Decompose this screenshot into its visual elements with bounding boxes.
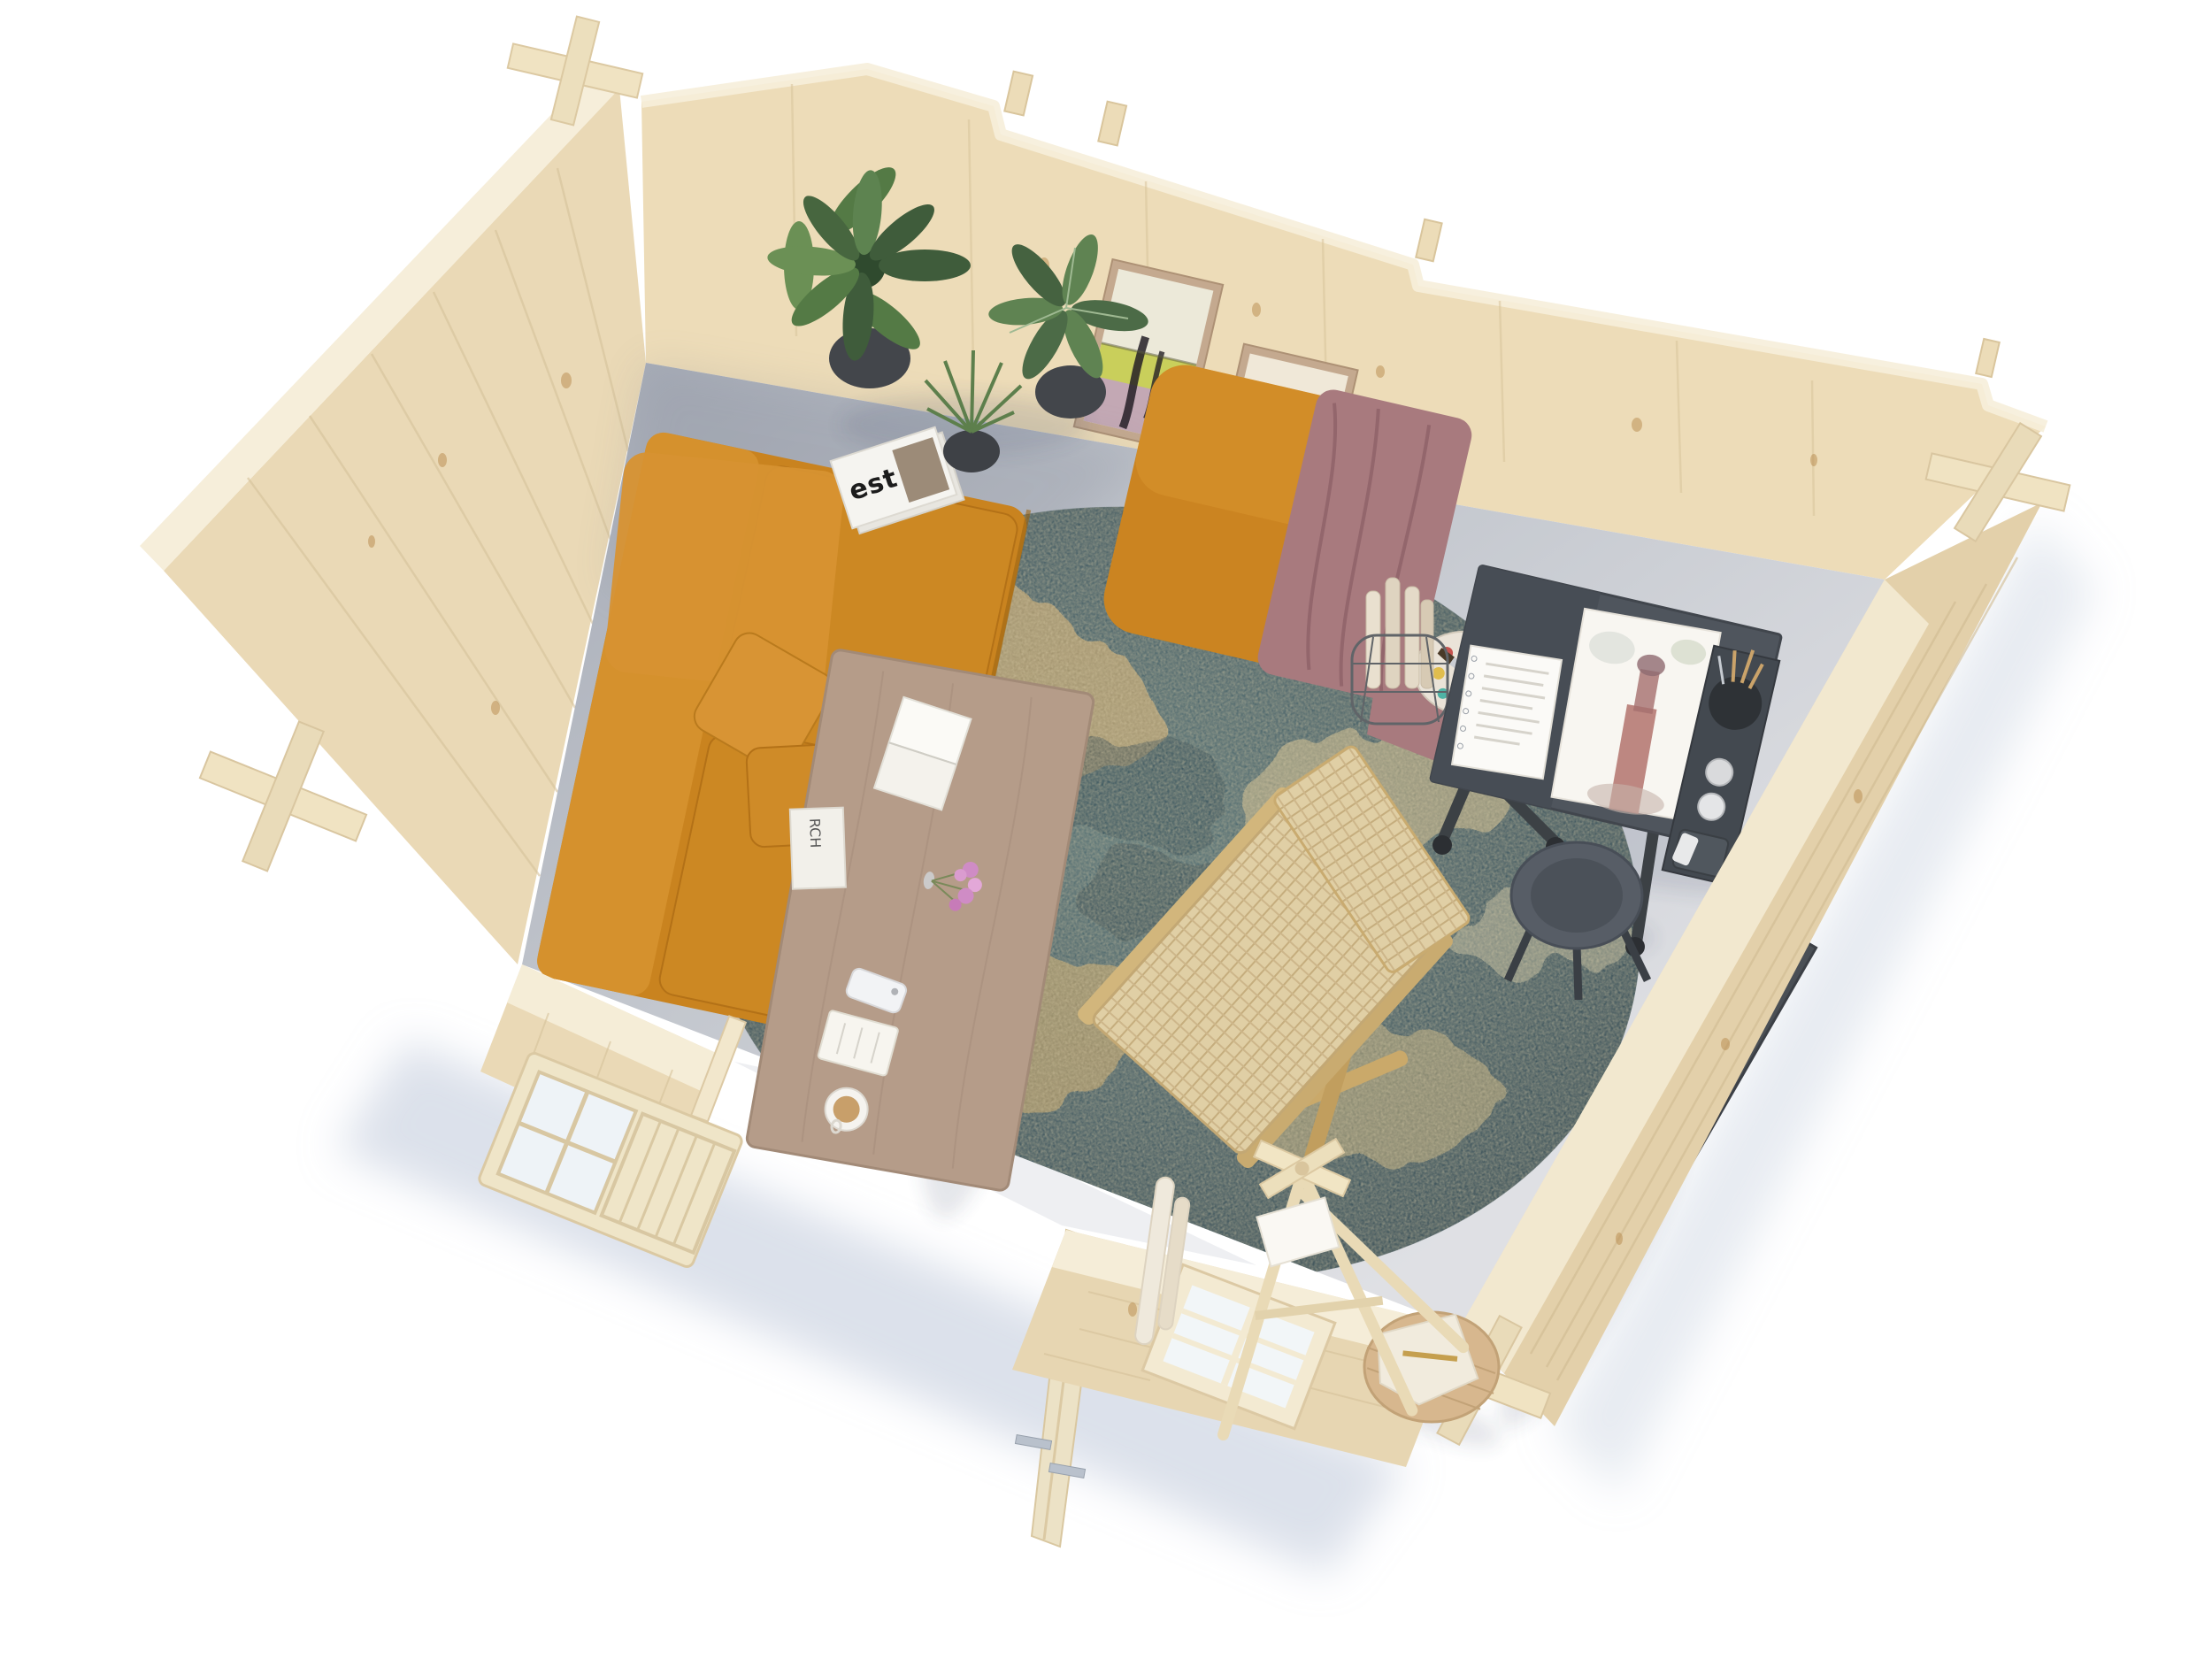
wood-knot xyxy=(1810,454,1817,466)
paper-roll xyxy=(1405,587,1419,688)
wood-knot xyxy=(1632,418,1642,432)
blade xyxy=(972,350,973,432)
wood-knot xyxy=(1854,789,1863,803)
stool-seat-inner xyxy=(1531,858,1623,933)
table-magazine: RCH xyxy=(790,808,846,889)
caster xyxy=(1432,835,1452,855)
stool-leg xyxy=(1577,945,1578,1000)
plant-pot xyxy=(943,430,1000,472)
render-canvas: est RCH xyxy=(0,0,2212,1659)
wood-knot xyxy=(1376,365,1385,378)
desk-notebook xyxy=(1452,646,1562,780)
wood-knot xyxy=(1721,1038,1730,1050)
sofa-back-cushion xyxy=(603,450,846,694)
wood-knot xyxy=(368,535,375,548)
wood-knot xyxy=(438,453,447,467)
paper-roll xyxy=(1386,578,1400,688)
wood-knot xyxy=(491,701,500,715)
wood-knot xyxy=(1252,303,1261,317)
wood-knot xyxy=(1616,1233,1623,1245)
wood-knot xyxy=(1128,1302,1137,1317)
table-magazine-title: RCH xyxy=(806,818,824,848)
wood-knot xyxy=(561,373,572,388)
